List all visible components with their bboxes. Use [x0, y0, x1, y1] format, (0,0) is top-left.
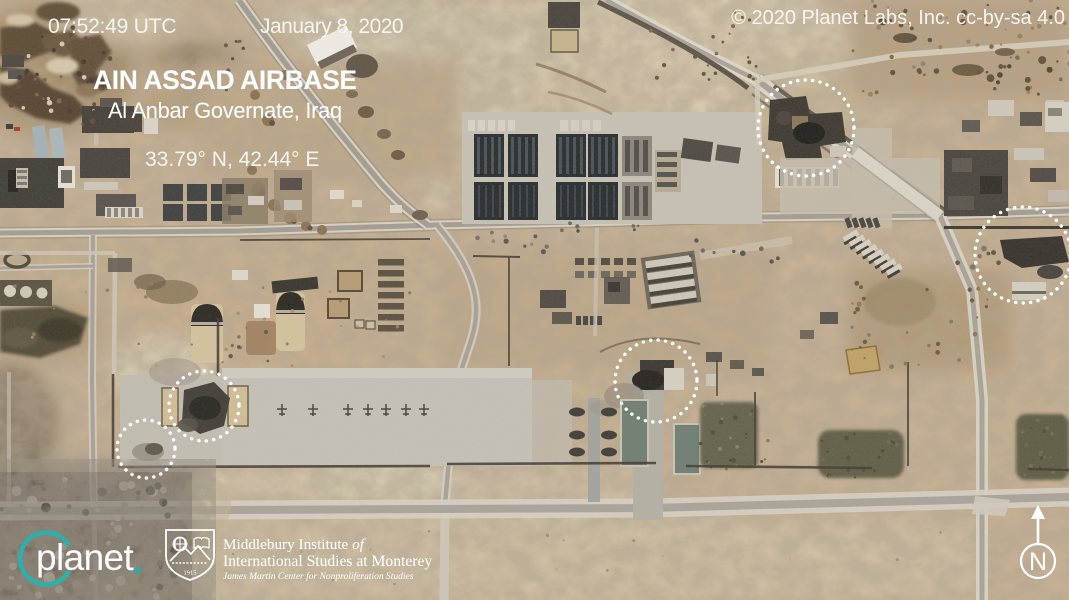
svg-text:January 8, 2020: January 8, 2020 — [260, 15, 403, 38]
svg-text:AIN ASSAD AIRBASE: AIN ASSAD AIRBASE — [93, 65, 357, 95]
svg-text:planet: planet — [36, 537, 135, 578]
svg-text:James Martin Center for Nonpro: James Martin Center for Nonproliferation… — [223, 571, 414, 582]
svg-text:33.79° N, 42.44° E: 33.79° N, 42.44° E — [145, 148, 319, 171]
svg-text:N: N — [1029, 548, 1047, 576]
svg-text:Al Anbar Governate, Iraq: Al Anbar Governate, Iraq — [108, 98, 342, 123]
svg-text:1915: 1915 — [184, 570, 197, 577]
svg-text:07:52:49 UTC: 07:52:49 UTC — [48, 15, 176, 38]
svg-text:International Studies at Monte: International Studies at Monterey — [223, 553, 432, 570]
svg-text:Middlebury Institute of: Middlebury Institute of — [223, 536, 366, 553]
svg-text:© 2020 Planet Labs, Inc. cc-by: © 2020 Planet Labs, Inc. cc-by-sa 4.0 — [731, 7, 1065, 29]
